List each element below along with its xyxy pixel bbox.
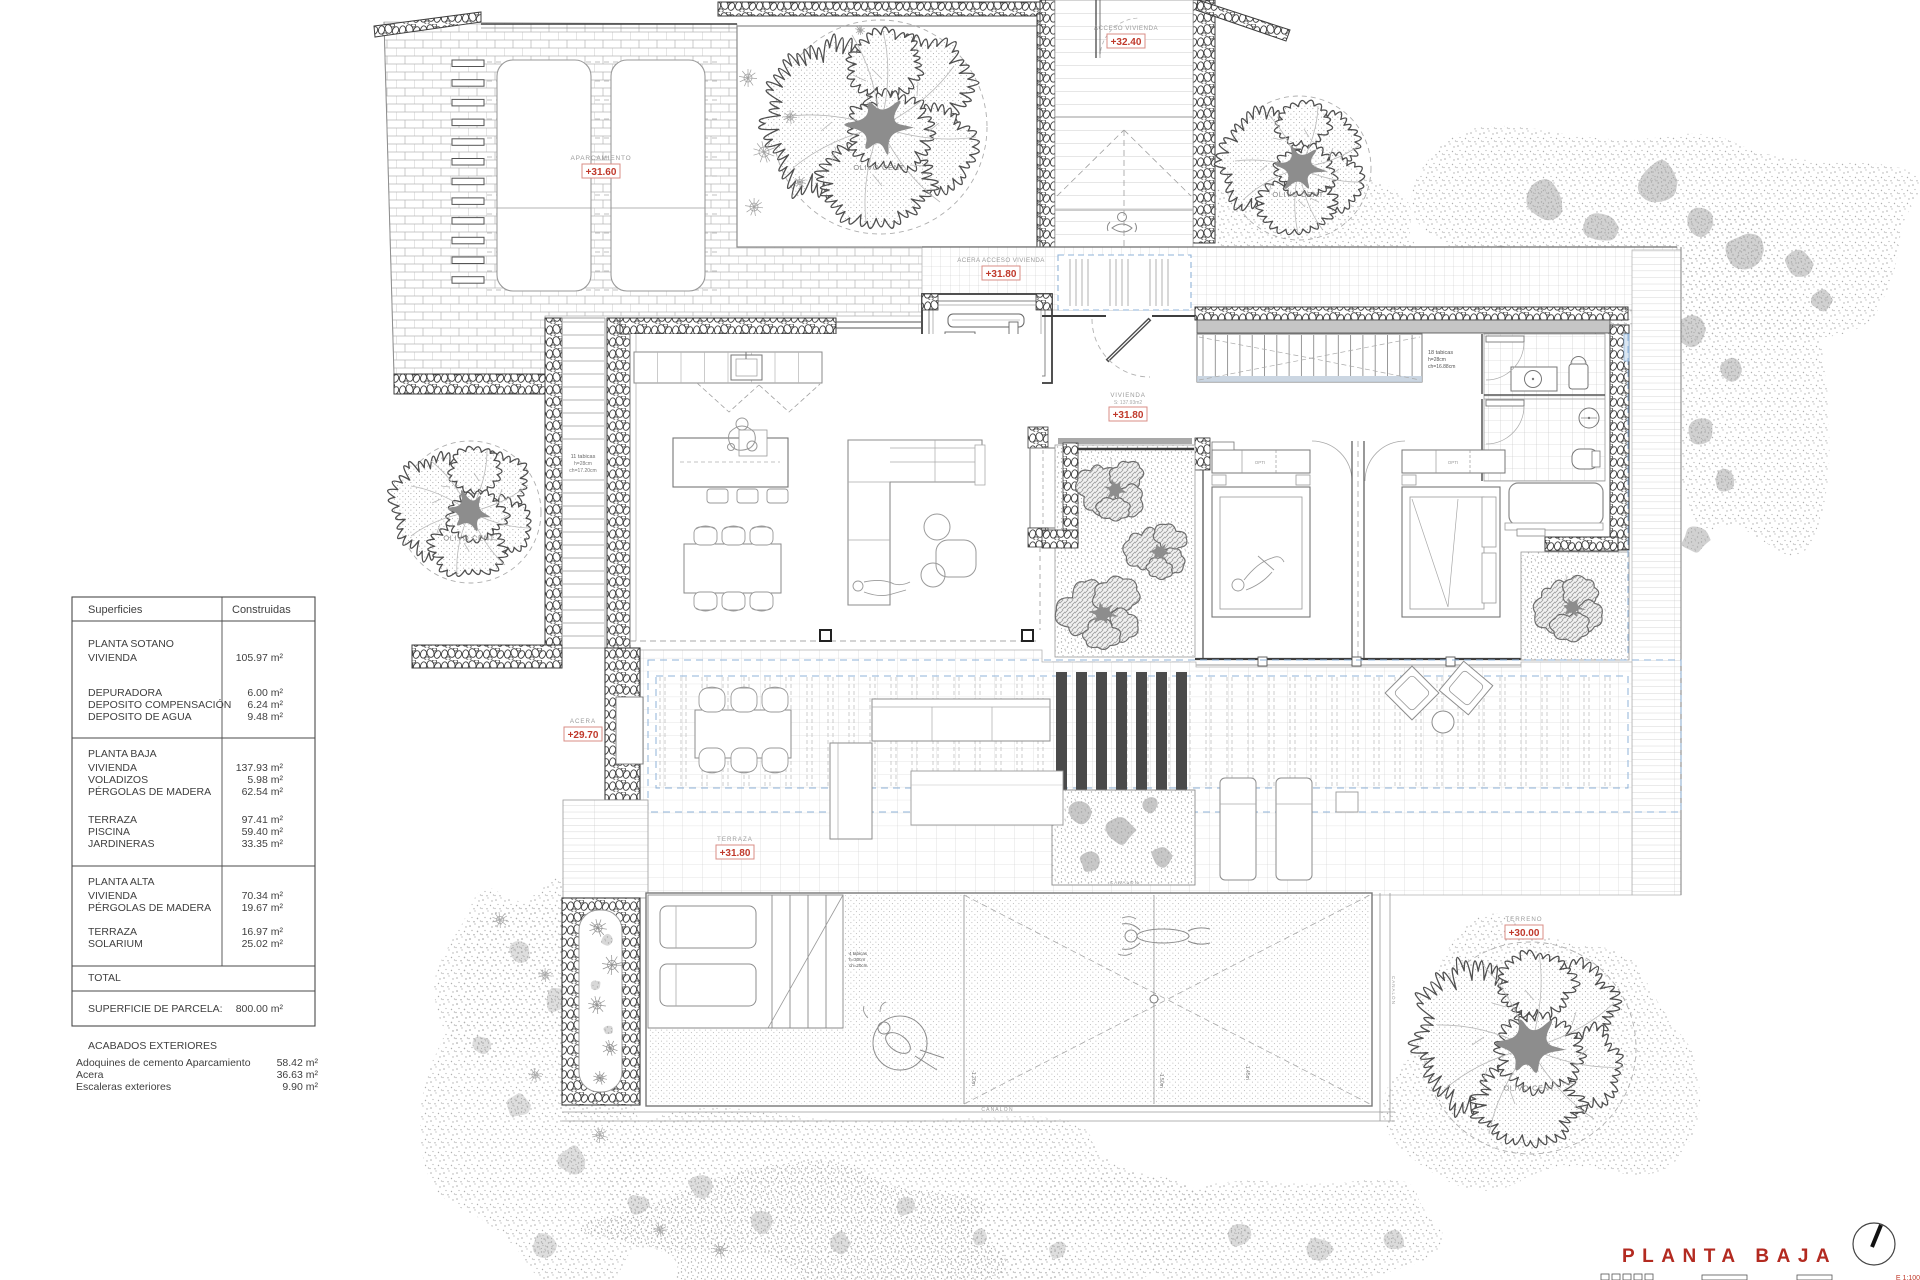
svg-text:800.00 m²: 800.00 m² (236, 1003, 284, 1015)
svg-text:+32.40: +32.40 (1111, 37, 1142, 48)
svg-text:DEPOSITO DE AGUA: DEPOSITO DE AGUA (88, 711, 192, 723)
svg-text:TERRENO: TERRENO (1505, 916, 1542, 923)
svg-text:S: 137.93m2: S: 137.93m2 (1114, 400, 1143, 406)
svg-text:62.54 m²: 62.54 m² (242, 786, 284, 798)
svg-text:JARDINERAS: JARDINERAS (88, 838, 155, 850)
svg-text:TOTAL: TOTAL (88, 972, 121, 984)
svg-text:33.35 m²: 33.35 m² (242, 838, 284, 850)
svg-text:SOLARIUM: SOLARIUM (88, 938, 143, 950)
svg-text:9.48 m²: 9.48 m² (247, 711, 283, 723)
svg-text:APARCAMIENTO: APARCAMIENTO (570, 155, 631, 162)
svg-text:OPTI: OPTI (1448, 460, 1459, 465)
svg-text:58.42 m²: 58.42 m² (277, 1057, 319, 1069)
svg-text:6.24 m²: 6.24 m² (247, 699, 283, 711)
svg-text:DEPURADORA: DEPURADORA (88, 687, 162, 699)
svg-text:TERRAZA: TERRAZA (88, 926, 137, 938)
svg-text:OLIVO CENT.: OLIVO CENT. (853, 163, 906, 172)
svg-text:18 tabicas: 18 tabicas (1428, 350, 1453, 356)
svg-text:+31.80: +31.80 (986, 269, 1017, 280)
svg-text:+31.80: +31.80 (720, 848, 751, 859)
svg-text:OLIVO CENT.: OLIVO CENT. (1503, 1083, 1556, 1092)
svg-text:+29.70: +29.70 (568, 730, 599, 741)
svg-text:137.93 m²: 137.93 m² (236, 762, 284, 774)
svg-text:VIVIENDA: VIVIENDA (88, 652, 137, 664)
svg-text:-1.20m: -1.20m (970, 1070, 976, 1086)
svg-text:VIVIENDA: VIVIENDA (88, 762, 137, 774)
svg-text:h=28cm: h=28cm (1428, 357, 1446, 363)
svg-text:6.00 m²: 6.00 m² (247, 687, 283, 699)
svg-text:9.90 m²: 9.90 m² (282, 1081, 318, 1093)
svg-text:ACERA: ACERA (570, 718, 596, 725)
svg-text:VOLADIZOS: VOLADIZOS (88, 774, 148, 786)
svg-text:C A N A L Ó N: C A N A L Ó N (1391, 976, 1397, 1004)
svg-text:OLIVO CENT.: OLIVO CENT. (1272, 190, 1325, 199)
svg-text:+30.00: +30.00 (1509, 928, 1540, 939)
svg-text:PISCINA: PISCINA (88, 826, 130, 838)
svg-text:11 tabicas: 11 tabicas (571, 454, 596, 460)
svg-text:ACERA ACCESO VIVIENDA: ACERA ACCESO VIVIENDA (957, 257, 1045, 264)
svg-text:OLIVO CENT.: OLIVO CENT. (443, 533, 496, 542)
svg-text:Superficies: Superficies (88, 604, 143, 616)
svg-text:C A N A L Ó N: C A N A L Ó N (981, 1106, 1013, 1113)
svg-text:105.97 m²: 105.97 m² (236, 652, 284, 664)
svg-text:PLANTA ALTA: PLANTA ALTA (88, 876, 155, 888)
svg-text:25.02 m²: 25.02 m² (242, 938, 284, 950)
svg-text:-1.45m: -1.45m (1244, 1064, 1250, 1080)
svg-text:E 1:100: E 1:100 (1896, 1275, 1920, 1280)
svg-text:TERRAZA: TERRAZA (88, 814, 137, 826)
svg-text:Construidas: Construidas (232, 604, 291, 616)
svg-text:ch=17.20cm: ch=17.20cm (569, 468, 596, 474)
svg-text:36.63 m²: 36.63 m² (277, 1069, 319, 1081)
svg-text:PÉRGOLAS DE MADERA: PÉRGOLAS DE MADERA (88, 901, 211, 914)
svg-text:ch=20cm: ch=20cm (849, 963, 868, 968)
svg-text:h=28cm: h=28cm (574, 461, 592, 467)
svg-text:+31.80: +31.80 (1113, 410, 1144, 421)
svg-text:+31.60: +31.60 (586, 167, 617, 178)
svg-text:TERRAZA: TERRAZA (717, 836, 753, 843)
svg-text:PLANTA BAJA: PLANTA BAJA (88, 748, 157, 760)
svg-text:ch=16.88cm: ch=16.88cm (1428, 364, 1455, 370)
svg-text:PLANTA SOTANO: PLANTA SOTANO (88, 638, 174, 650)
svg-text:PÉRGOLAS DE MADERA: PÉRGOLAS DE MADERA (88, 785, 211, 798)
svg-text:Escaleras exteriores: Escaleras exteriores (76, 1081, 171, 1093)
svg-text:97.41 m²: 97.41 m² (242, 814, 284, 826)
svg-text:OPTI: OPTI (1255, 460, 1266, 465)
svg-text:VIVIENDA: VIVIENDA (1110, 392, 1145, 399)
svg-text:-1.50m: -1.50m (1158, 1072, 1164, 1088)
svg-text:C A N A L Ó N: C A N A L Ó N (1110, 879, 1138, 885)
svg-text:59.40 m²: 59.40 m² (242, 826, 284, 838)
svg-text:SUPERFICIE DE PARCELA:: SUPERFICIE DE PARCELA: (88, 1003, 223, 1015)
svg-text:Acera: Acera (76, 1069, 104, 1081)
svg-text:70.34 m²: 70.34 m² (242, 890, 284, 902)
svg-text:h=30cm: h=30cm (849, 957, 865, 962)
svg-text:19.67 m²: 19.67 m² (242, 902, 284, 914)
svg-text:DEPOSITO COMPENSACIÓN: DEPOSITO COMPENSACIÓN (88, 698, 231, 711)
svg-text:Adoquines de cemento Aparcamie: Adoquines de cemento Aparcamiento (76, 1057, 251, 1069)
svg-text:VIVIENDA: VIVIENDA (88, 890, 137, 902)
svg-text:PLANTA BAJA: PLANTA BAJA (1622, 1246, 1837, 1267)
svg-text:ACABADOS EXTERIORES: ACABADOS EXTERIORES (88, 1040, 217, 1052)
svg-text:5.98 m²: 5.98 m² (247, 774, 283, 786)
svg-text:ACCESO VIVIENDA: ACCESO VIVIENDA (1094, 25, 1159, 32)
svg-text:16.97 m²: 16.97 m² (242, 926, 284, 938)
svg-text:4 tabicas: 4 tabicas (849, 951, 868, 956)
